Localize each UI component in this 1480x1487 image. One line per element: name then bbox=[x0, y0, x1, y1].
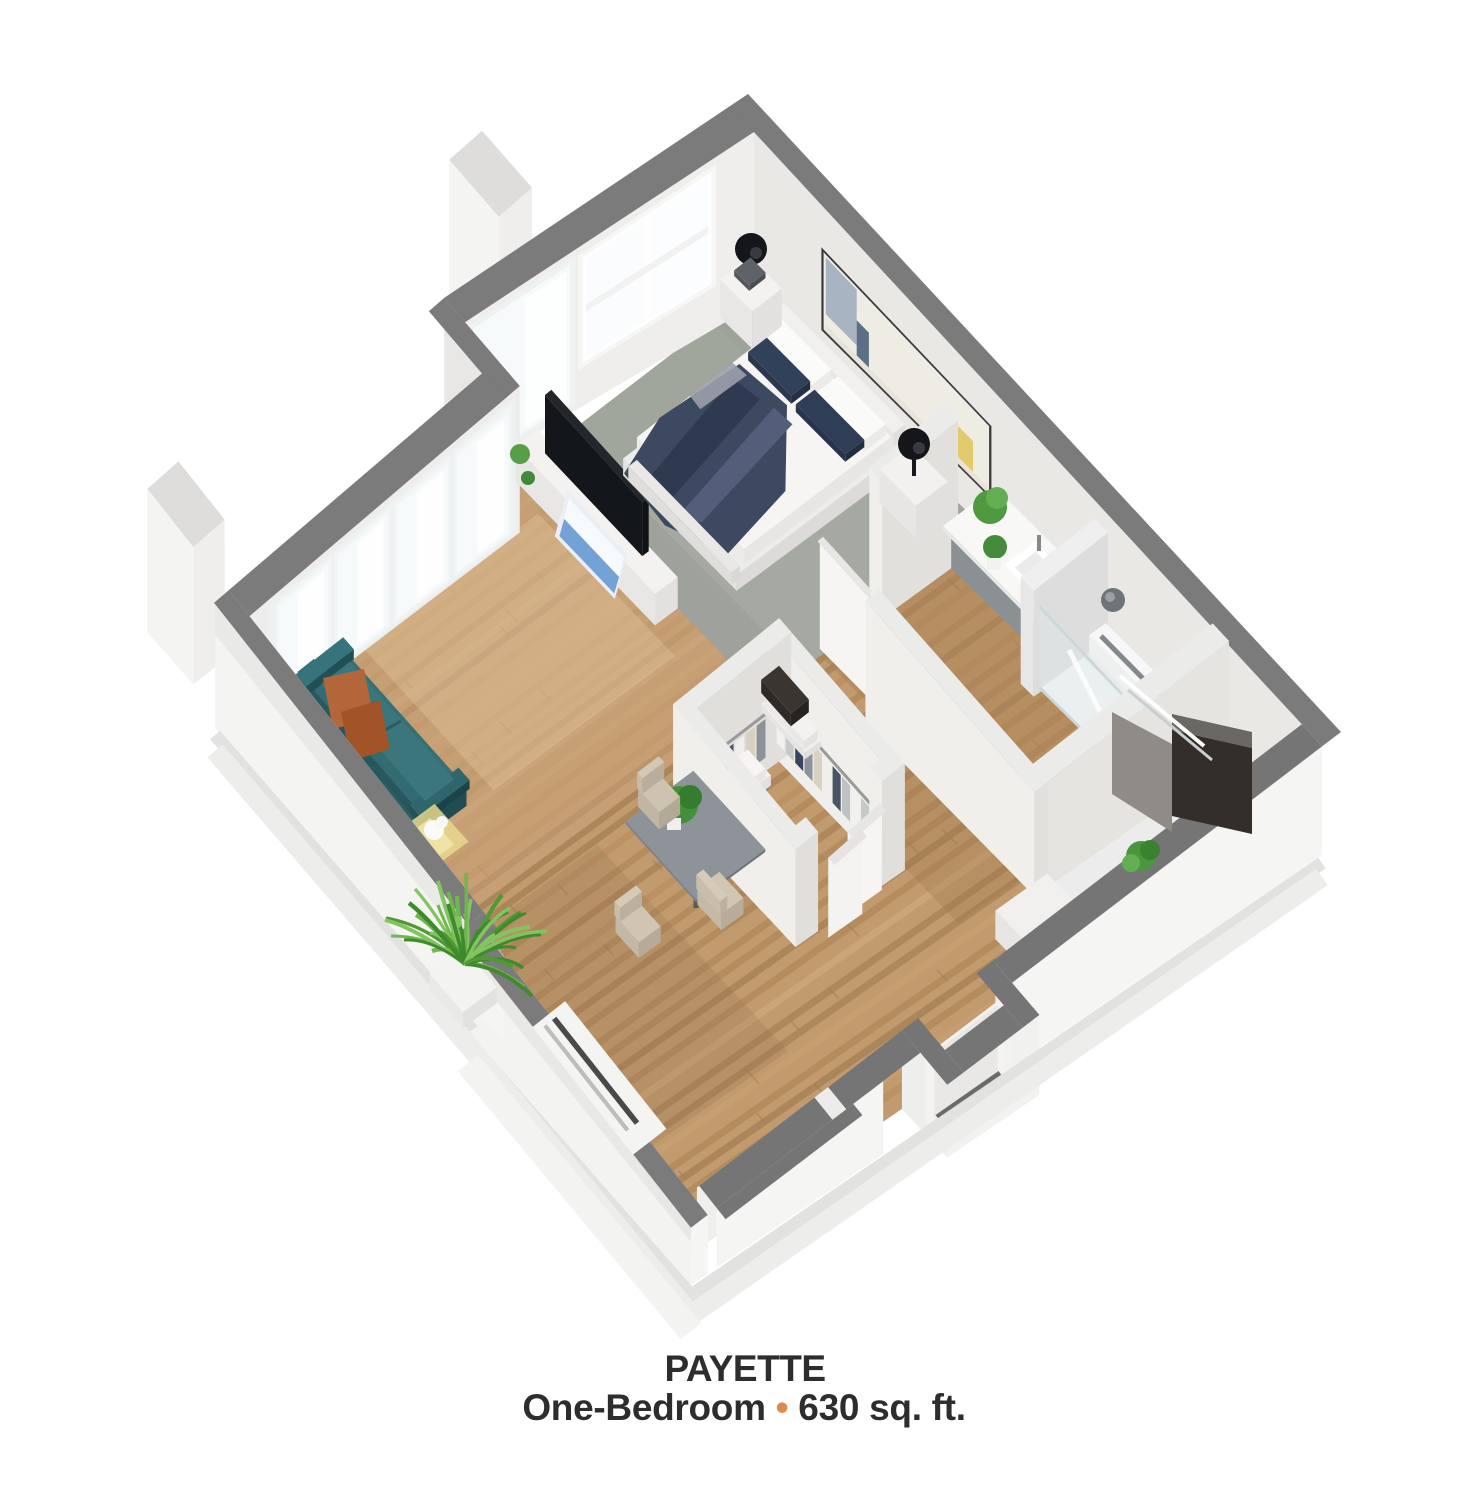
svg-text:PAYETTE: PAYETTE bbox=[665, 1348, 826, 1389]
svg-text:One-Bedroom • 630 sq. ft.: One-Bedroom • 630 sq. ft. bbox=[522, 1387, 965, 1428]
